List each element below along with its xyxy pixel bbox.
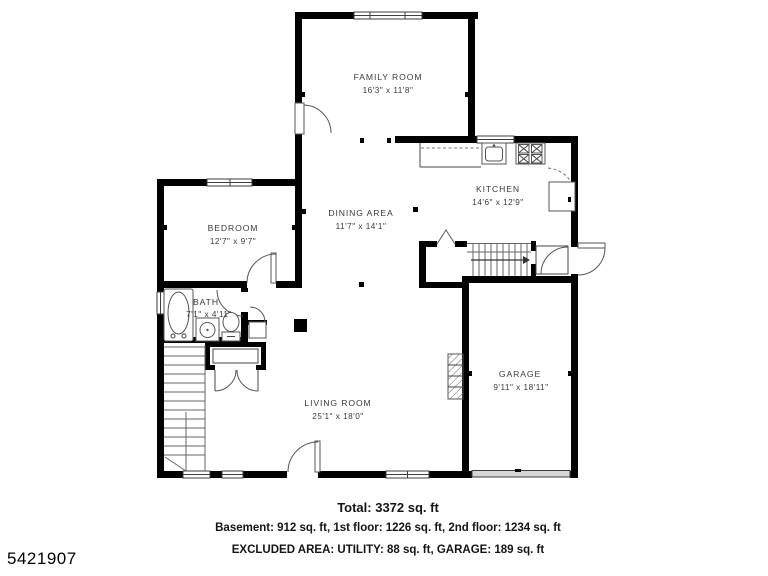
stairs-basement: [164, 345, 205, 471]
bath-window: [157, 292, 164, 314]
room-label-bath: BATH: [193, 297, 219, 307]
doors: [215, 103, 605, 472]
closet-double-doors: [215, 370, 258, 391]
bedroom-door: [247, 253, 276, 283]
fireplace: [448, 354, 463, 399]
excluded-area-text: EXCLUDED AREA: UTILITY: 88 sq. ft, GARAG…: [0, 544, 768, 556]
refrigerator: [549, 182, 575, 211]
room-dims-living-room: 25'1" x 18'0": [312, 412, 363, 421]
vestibule-door: [536, 246, 568, 274]
kitchen-sink: [482, 143, 506, 164]
bathroom-sink: [196, 318, 219, 341]
room-label-bedroom: BEDROOM: [208, 223, 259, 233]
alcove-door: [249, 307, 266, 338]
bedroom-window: [207, 179, 252, 186]
room-label-garage: GARAGE: [499, 369, 541, 379]
room-label-family-room: FAMILY ROOM: [354, 72, 423, 82]
floor-areas-text: Basement: 912 sq. ft, 1st floor: 1226 sq…: [0, 522, 768, 534]
closet-shelf: [213, 349, 258, 363]
room-label-kitchen: KITCHEN: [476, 184, 520, 194]
room-label-dining-area: DINING AREA: [328, 208, 393, 218]
living-room-window-1: [183, 471, 210, 478]
room-dims-family-room: 16'3" x 11'8": [363, 86, 414, 95]
stairs-up: [467, 244, 531, 277]
room-dims-bath: 7'1" x 4'11": [186, 310, 232, 319]
garage-door: [472, 469, 570, 477]
family-room-side-door: [295, 103, 331, 134]
front-door: [288, 441, 320, 472]
room-labels: FAMILY ROOM 16'3" x 11'8" KITCHEN 14'6" …: [186, 72, 549, 421]
chimney: [294, 319, 307, 332]
room-dims-bedroom: 12'7" x 9'7": [210, 237, 256, 246]
living-room-window-3: [386, 471, 429, 478]
stove: [516, 143, 545, 164]
room-dims-kitchen: 14'6" x 12'9": [472, 198, 523, 207]
living-room-window-2: [222, 471, 243, 478]
listing-id: 5421907: [7, 549, 77, 569]
floor-plan-drawing: FAMILY ROOM 16'3" x 11'8" KITCHEN 14'6" …: [0, 0, 768, 576]
utility-open-door: [437, 230, 455, 244]
kitchen-window: [477, 136, 514, 143]
room-label-living-room: LIVING ROOM: [304, 398, 371, 408]
floor-plan-page: FAMILY ROOM 16'3" x 11'8" KITCHEN 14'6" …: [0, 0, 768, 576]
family-room-window: [354, 12, 422, 19]
room-dims-garage: 9'11" x 18'11": [493, 383, 548, 392]
room-dims-dining-area: 11'7" x 14'1": [336, 222, 387, 231]
total-area-text: Total: 3372 sq. ft: [0, 500, 768, 515]
side-entry-door: [578, 243, 605, 275]
